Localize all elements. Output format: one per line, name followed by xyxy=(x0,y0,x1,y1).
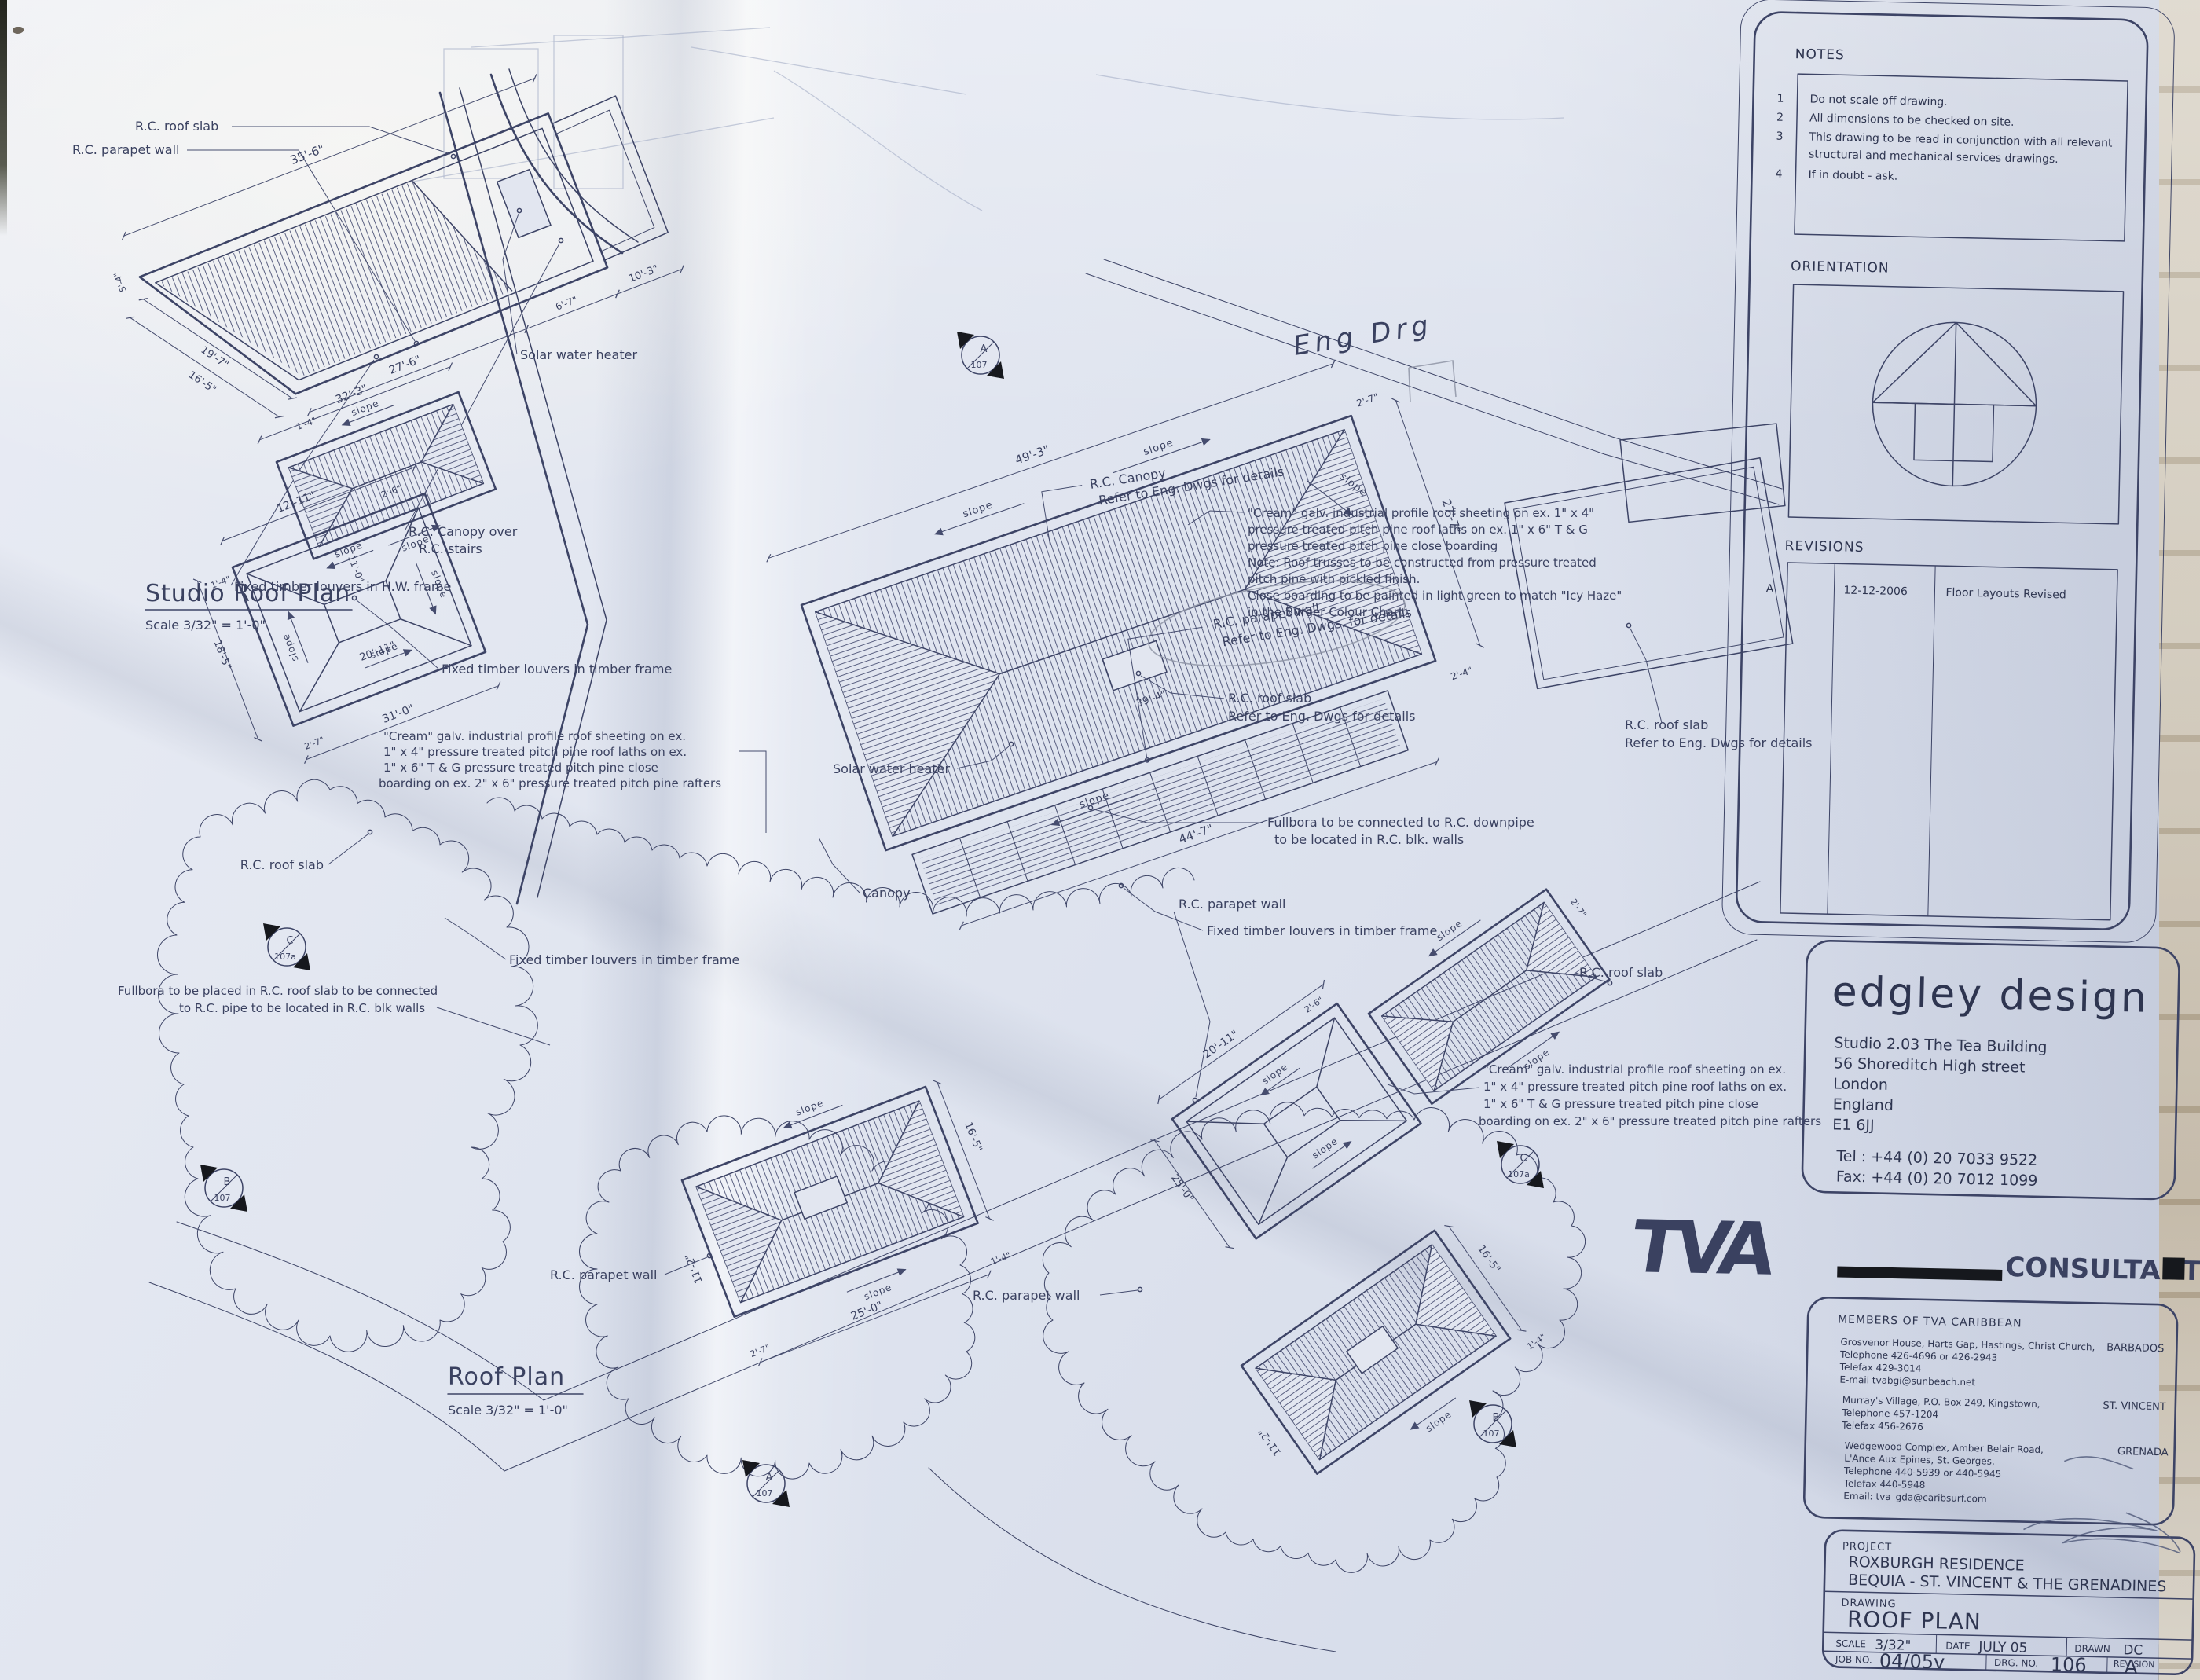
spec-note-wing: boarding on ex. 2" x 6" pressure treated… xyxy=(379,776,721,790)
slope-label: slope xyxy=(1435,918,1465,944)
slope-label: slope xyxy=(962,499,995,520)
orientation-title: ORIENTATION xyxy=(1791,259,1890,277)
bleed-through-ghost-lines xyxy=(409,28,1564,211)
spec-note-wing: "Cream" galv. industrial profile roof sh… xyxy=(383,729,686,743)
photo-of-roof-plan-sheet: 35'-6" 27'-6" 6'-7" 10'-3" 19'-7" 16'-5"… xyxy=(0,0,2200,1680)
dim-label: 16'-5" xyxy=(962,1121,984,1154)
annotation-rc-roof-slab: R.C. roof slab xyxy=(135,119,218,134)
slope-label: slope xyxy=(1142,437,1175,458)
studio-roof-plan: 35'-6" 27'-6" 6'-7" 10'-3" 19'-7" 16'-5"… xyxy=(94,37,687,474)
upper-roof-slab xyxy=(1620,424,1785,522)
firm-box: edgley design Studio 2.03 The Tea Buildi… xyxy=(1802,941,2180,1200)
office-country: BARBADOS xyxy=(2106,1342,2164,1355)
spec-note-main: pitch pine with pickled finish. xyxy=(1248,572,1420,586)
notes-title: NOTES xyxy=(1795,46,1845,63)
notes-panel: NOTES 1 Do not scale off drawing. 2 All … xyxy=(1774,46,2128,241)
project-location: BEQUIA - ST. VINCENT & THE GRENADINES xyxy=(1848,1572,2167,1595)
slope-label: slope xyxy=(1310,1135,1340,1161)
office-line: Telefax 429-3014 xyxy=(1839,1362,1922,1374)
section-marker-a: A 107 xyxy=(742,1460,790,1507)
dim-label: 5'-4" xyxy=(112,270,128,293)
job-value: 04/05v xyxy=(1879,1650,1945,1674)
note-number: 2 xyxy=(1776,112,1784,124)
dim-label: 2'-7" xyxy=(749,1343,772,1359)
dim-label: 16'-5" xyxy=(1475,1243,1502,1275)
annotation-rc-roof-slab: R.C. roof slab xyxy=(1228,691,1311,706)
section-marker-b: B 107 xyxy=(200,1165,247,1212)
marker-number: 107a xyxy=(1508,1169,1530,1179)
dim-label: 49'-3" xyxy=(1014,442,1051,468)
slope-label: slope xyxy=(350,398,381,418)
annotation-solar-water-heater: Solar water heater xyxy=(520,347,637,362)
spec-note-wing: 1" x 4" pressure treated pitch pine roof… xyxy=(1483,1080,1787,1094)
dim-label: 1'-4" xyxy=(989,1250,1012,1267)
office-line: Telephone 426-4696 or 426-2943 xyxy=(1839,1349,1997,1363)
office-line: L'Ance Aux Epines, St. Georges, xyxy=(1844,1453,1995,1467)
marker-number: 107a xyxy=(274,952,296,962)
revisions-panel: REVISIONS A 12-12-2006 Floor Layouts Rev… xyxy=(1759,537,2118,919)
spec-note-wing: 1" x 6" T & G pressure treated pitch pin… xyxy=(1483,1097,1758,1111)
firm-address: London xyxy=(1833,1075,1888,1093)
dim-label: 25'-0" xyxy=(849,1300,885,1323)
marker-number: 107 xyxy=(214,1193,231,1203)
note-text: If in doubt - ask. xyxy=(1808,168,1897,182)
dim-label: 31'-0" xyxy=(380,702,416,726)
roof-plan-sheet: 35'-6" 27'-6" 6'-7" 10'-3" 19'-7" 16'-5"… xyxy=(0,0,2200,1680)
dim-label: 2'-7" xyxy=(1355,391,1380,409)
date-label: DATE xyxy=(1945,1641,1971,1652)
main-roof: 49'-3" 39'-4" slope slope slope slope 44… xyxy=(762,324,1532,946)
revision-value: A xyxy=(2125,1656,2139,1678)
dim-label: 11'-2" xyxy=(684,1252,706,1285)
east-wing-lower: slope 16'-5" 11'-2" 1'-4" xyxy=(1220,1211,1556,1515)
marker-letter: C xyxy=(286,935,293,947)
firm-name: edgley design xyxy=(1831,968,2149,1022)
office-country: ST. VINCENT xyxy=(2103,1400,2166,1414)
annotation-rc-parapet-wall: R.C. parapet wall xyxy=(973,1288,1080,1303)
note-number: 1 xyxy=(1776,93,1784,105)
note-text: This drawing to be read in conjunction w… xyxy=(1808,130,2113,149)
note-text: structural and mechanical services drawi… xyxy=(1809,148,2059,166)
office-line: Telefax 456-2676 xyxy=(1841,1420,1923,1432)
firm-address: Studio 2.03 The Tea Building xyxy=(1834,1034,2048,1056)
annotation-rc-parapet-wall: R.C. parapet wall xyxy=(550,1267,657,1282)
dim-label: 20'-11" xyxy=(358,640,398,664)
section-marker-a: A 107 xyxy=(957,332,1004,379)
tva-logo-text: TVA xyxy=(1625,1205,1783,1292)
annotation-fixed-louvers: Fixed timber louvers in timber frame xyxy=(442,662,672,677)
slope-label: slope xyxy=(794,1097,826,1117)
terrace-roof-slab xyxy=(1505,458,1793,689)
firm-address: 56 Shoreditch High street xyxy=(1834,1055,2026,1076)
office-line: E-mail tvabgi@sunbeach.net xyxy=(1839,1374,1975,1388)
annotation-rc-parapet-wall: R.C. parapet wall xyxy=(1179,897,1285,912)
spec-note-wing: boarding on ex. 2" x 6" pressure treated… xyxy=(1479,1114,1821,1128)
office-line: Telephone 457-1204 xyxy=(1841,1407,1938,1421)
office-country: GRENADA xyxy=(2117,1446,2169,1458)
firm-address: England xyxy=(1833,1095,1894,1114)
spec-note-wing: 1" x 4" pressure treated pitch pine roof… xyxy=(383,745,687,759)
scale-label: SCALE xyxy=(1835,1638,1866,1650)
section-marker-b: B 107 xyxy=(1469,1400,1516,1447)
dim-label: 19'-7" xyxy=(199,344,231,371)
consultants-logo: TVA CONSULTANTS LTD xyxy=(1625,1204,2200,1302)
marker-number: 107 xyxy=(757,1488,773,1498)
marker-letter: A xyxy=(766,1472,773,1484)
annotation-rc-roof-slab: R.C. roof slab xyxy=(240,857,324,872)
north-arrow-icon xyxy=(1871,321,2037,487)
annotation-fullbora: to be located in R.C. blk. walls xyxy=(1274,832,1464,847)
job-label: JOB NO. xyxy=(1835,1654,1872,1666)
marker-letter: B xyxy=(224,1176,231,1188)
dim-label: 2'-6" xyxy=(1303,995,1325,1015)
members-title: MEMBERS OF TVA CARIBBEAN xyxy=(1838,1314,2022,1330)
office-line: Telephone 440-5939 or 440-5945 xyxy=(1843,1465,2001,1480)
dim-label: 11'-2" xyxy=(1256,1426,1284,1458)
marker-letter: A xyxy=(981,343,988,355)
annotation-fullbora: Fullbora to be connected to R.C. downpip… xyxy=(1267,815,1534,830)
office-line: Email: tva_gda@caribsurf.com xyxy=(1843,1491,1987,1505)
dim-label: 2'-7" xyxy=(303,735,326,751)
west-wing-annotations: R.C. roof slab Fullbora to be placed in … xyxy=(118,729,766,1045)
annotation-fixed-louvers: Fixed timber louvers in timber frame xyxy=(509,952,739,967)
dim-label: 2'-4" xyxy=(1450,665,1474,682)
spec-note-main: pressure treated pitch pine close boardi… xyxy=(1248,539,1498,553)
annotation-canopy: Canopy xyxy=(863,886,911,901)
project-label: PROJECT xyxy=(1842,1541,1892,1553)
marker-number: 107 xyxy=(971,360,988,370)
project-name: ROXBURGH RESIDENCE xyxy=(1848,1553,2025,1575)
annotation-solar-water-heater: Solar water heater xyxy=(833,761,950,776)
dim-label: 2'-7" xyxy=(1568,897,1589,919)
section-marker-c: C 107a xyxy=(263,923,310,970)
firm-fax: Fax: +44 (0) 20 7012 1099 xyxy=(1836,1168,2038,1189)
annotation-fullbora-placed: to R.C. pipe to be located in R.C. blk w… xyxy=(179,1001,425,1015)
cloud-outline xyxy=(158,779,538,1352)
right-column: NOTES 1 Do not scale off drawing. 2 All … xyxy=(1617,0,2200,1680)
dim-label: 1'-4" xyxy=(1525,1332,1548,1352)
firm-tel: Tel : +44 (0) 20 7033 9522 xyxy=(1835,1147,2037,1168)
dim-label: 27'-6" xyxy=(387,354,423,377)
office-line: Telefax 440-5948 xyxy=(1843,1478,1926,1491)
main-plan-scale: Scale 3/32" = 1'-0" xyxy=(448,1403,568,1418)
drawn-label: DRAWN xyxy=(2074,1643,2110,1655)
spec-note-wing: "Cream" galv. industrial profile roof sh… xyxy=(1483,1062,1786,1077)
slope-label: slope xyxy=(1424,1409,1454,1435)
spec-note-main: Note: Roof trusses to be constructed fro… xyxy=(1248,556,1597,570)
annotation-fullbora-placed: Fullbora to be placed in R.C. roof slab … xyxy=(118,984,438,998)
revision-letter: A xyxy=(1766,582,1774,595)
pencil-handwriting: Eng Drg xyxy=(1291,309,1435,362)
slope-label: slope xyxy=(1260,1061,1290,1087)
revision-description: Floor Layouts Revised xyxy=(1945,586,2066,601)
dim-label: 18'-5" xyxy=(211,639,233,672)
members-box: MEMBERS OF TVA CARIBBEAN Grosvenor House… xyxy=(1804,1297,2178,1525)
firm-address: E1 6JJ xyxy=(1832,1116,1875,1134)
marker-letter: C xyxy=(1520,1153,1527,1165)
spec-note-wing: 1" x 6" T & G pressure treated pitch pin… xyxy=(383,761,658,775)
note-number: 3 xyxy=(1776,130,1783,143)
note-number: 4 xyxy=(1775,168,1782,181)
marker-letter: B xyxy=(1493,1412,1500,1424)
date-value: JULY 05 xyxy=(1978,1639,2027,1656)
dim-label: 35'-6" xyxy=(288,141,327,167)
title-block: PROJECT ROXBURGH RESIDENCE BEQUIA - ST. … xyxy=(1823,1506,2195,1679)
main-plan-title: Roof Plan xyxy=(448,1363,565,1391)
drg-value: 106 xyxy=(2051,1653,2087,1676)
marker-number: 107 xyxy=(1483,1429,1500,1439)
drg-label: DRG. NO. xyxy=(1994,1657,2039,1669)
dim-label: 1'-4" xyxy=(295,416,317,432)
note-text: Do not scale off drawing. xyxy=(1809,93,1947,108)
dim-label: 10'-3" xyxy=(627,263,660,285)
studio-plan-scale: Scale 3/32" = 1'-0" xyxy=(145,618,266,633)
dim-label: 25'-0" xyxy=(1168,1172,1196,1205)
dim-label: 44'-7" xyxy=(1177,822,1215,847)
revisions-title: REVISIONS xyxy=(1784,538,1864,556)
annotation-rc-roof-slab: R.C. roof slab xyxy=(1625,717,1708,732)
annotation-refer: Refer to Eng. Dwgs for details xyxy=(1228,709,1415,724)
orientation-panel: ORIENTATION xyxy=(1785,259,2124,524)
spec-note-main: "Cream" galv. industrial profile roof sh… xyxy=(1248,506,1594,520)
annotation-fixed-louvers: Fixed timber louvers in timber frame xyxy=(1207,923,1437,938)
spec-note-main: pressure treated pitch pine roof laths o… xyxy=(1248,523,1588,537)
spec-note-main: Close boarding to be painted in light gr… xyxy=(1248,589,1622,603)
revision-date: 12-12-2006 xyxy=(1843,585,1908,599)
drawing-title: ROOF PLAN xyxy=(1847,1606,1982,1635)
annotation-rc-parapet-wall: R.C. parapet wall xyxy=(72,142,179,157)
note-text: All dimensions to be checked on site. xyxy=(1809,112,2015,128)
